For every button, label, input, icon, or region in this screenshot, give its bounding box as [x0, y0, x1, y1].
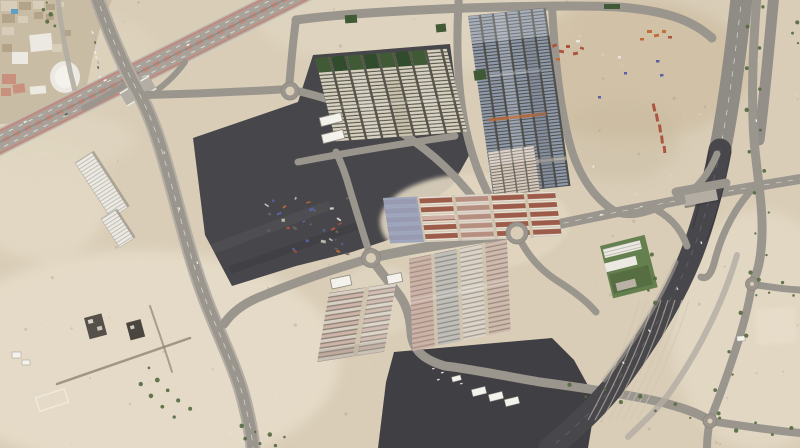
camp-yard-red — [383, 191, 562, 243]
satellite-canvas — [0, 0, 800, 448]
satellite-view — [0, 0, 800, 448]
camp-yard-pink — [317, 283, 396, 362]
trailer-yard-tan — [315, 48, 467, 141]
